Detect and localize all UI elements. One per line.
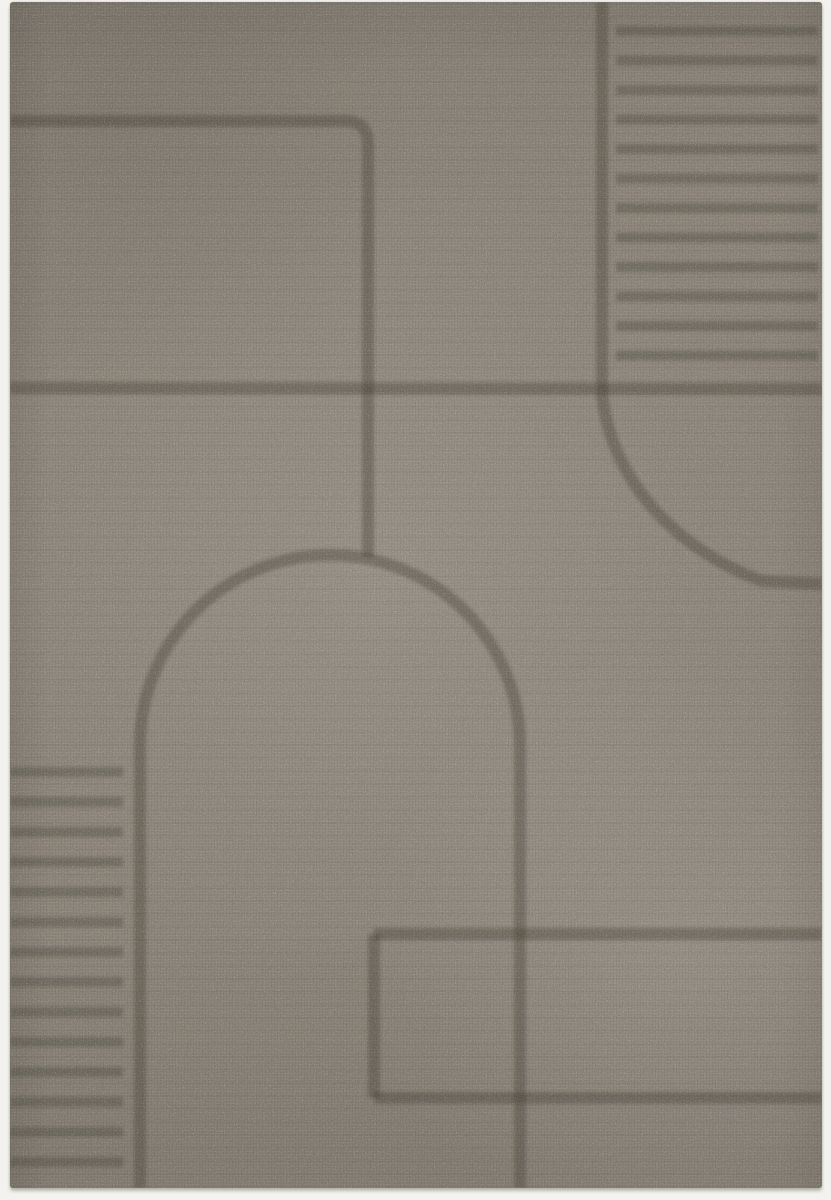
rug-pattern-svg: [0, 0, 831, 1200]
grain-light-overlay: [10, 2, 822, 1188]
product-photo: [0, 0, 831, 1200]
